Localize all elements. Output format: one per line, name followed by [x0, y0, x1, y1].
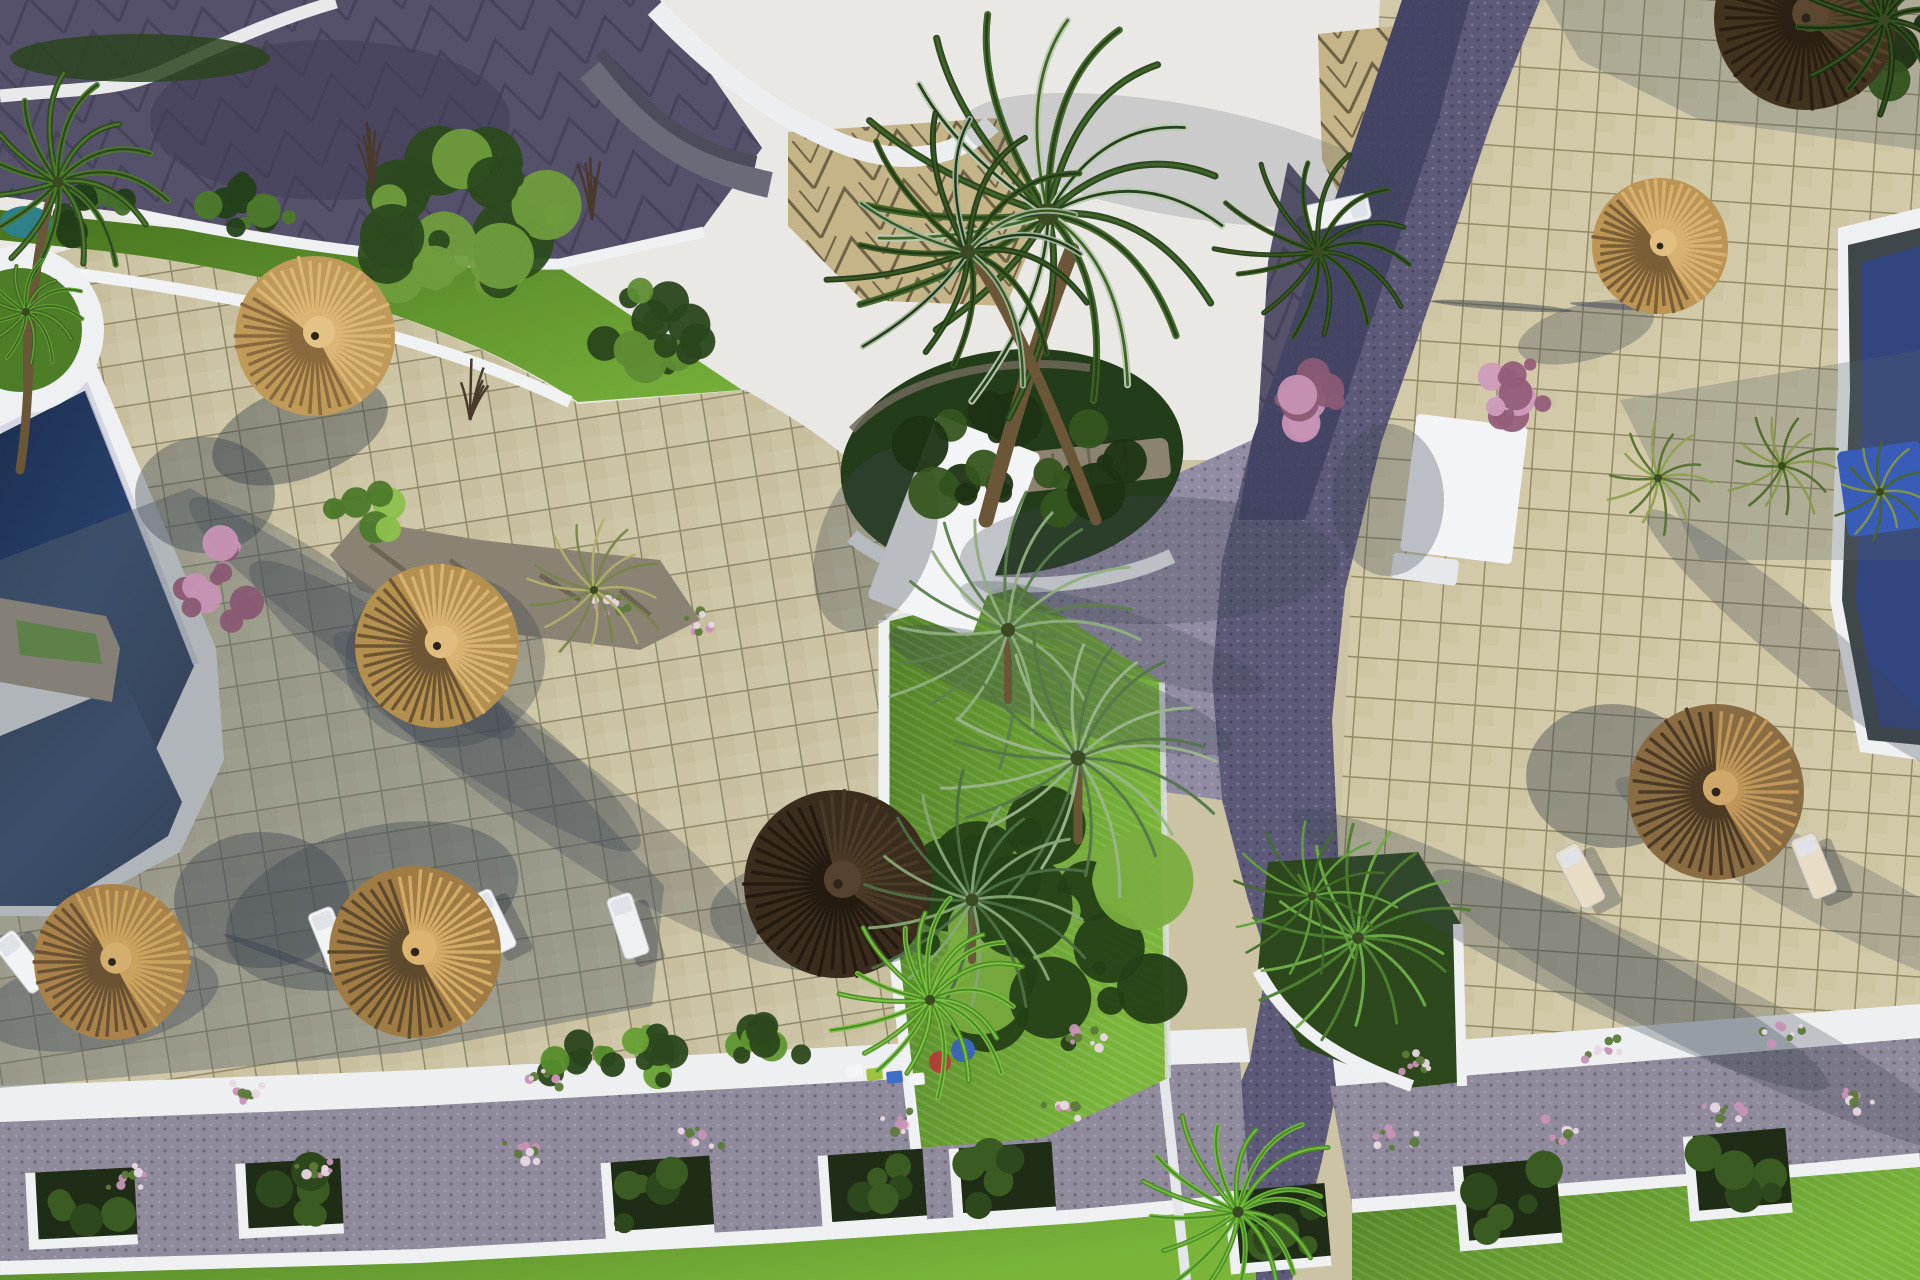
planter-box	[605, 1154, 714, 1236]
edge-box	[908, 1072, 925, 1086]
umbrella-cap	[425, 626, 458, 659]
umbrella-cap	[824, 861, 862, 899]
umbrella-cap	[402, 931, 436, 965]
garden-pot	[929, 1051, 951, 1073]
scene-canvas	[0, 0, 1920, 1280]
areca-bed-curb-east	[1458, 924, 1462, 1086]
straw-umbrella	[33, 884, 192, 1040]
edge-box	[886, 1070, 903, 1084]
thatch-umbrella	[1628, 704, 1804, 880]
planter-box	[1683, 1127, 1792, 1217]
resort-aerial-render	[0, 0, 1920, 1280]
umbrella-cap	[1650, 229, 1677, 256]
edge-box	[846, 1064, 863, 1078]
treeline-band	[10, 34, 270, 82]
cast-shadow	[1332, 424, 1444, 576]
umbrella-cap	[100, 943, 131, 974]
umbrella-cap	[303, 316, 335, 348]
umbrella-cap	[1703, 770, 1738, 805]
planter-box	[823, 1149, 928, 1228]
straw-umbrella	[234, 256, 395, 416]
